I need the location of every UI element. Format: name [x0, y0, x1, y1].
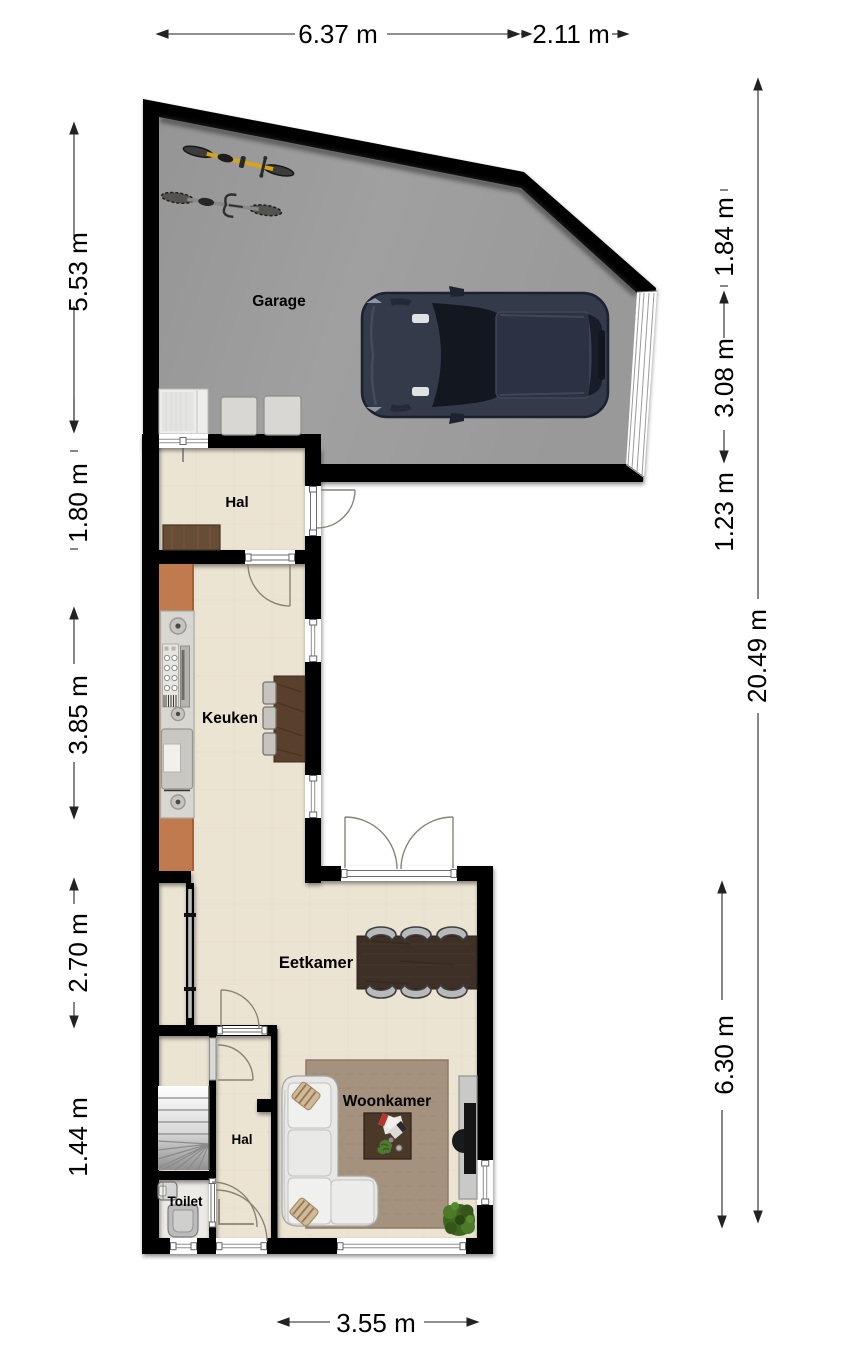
svg-text:1.80 m: 1.80 m: [63, 463, 93, 543]
svg-text:3.08 m: 3.08 m: [709, 338, 739, 418]
svg-text:1.44 m: 1.44 m: [63, 1097, 93, 1177]
svg-text:Garage: Garage: [252, 293, 306, 310]
svg-text:3.85 m: 3.85 m: [63, 675, 93, 755]
svg-text:Hal: Hal: [225, 494, 248, 511]
svg-text:2.70 m: 2.70 m: [63, 913, 93, 993]
svg-text:1.84 m: 1.84 m: [709, 197, 739, 277]
svg-text:3.55 m: 3.55 m: [336, 1308, 416, 1338]
svg-text:20.49 m: 20.49 m: [742, 609, 772, 703]
svg-text:Keuken: Keuken: [202, 710, 258, 727]
svg-text:Eetkamer: Eetkamer: [279, 954, 354, 972]
svg-text:5.53 m: 5.53 m: [63, 232, 93, 312]
svg-text:Hal: Hal: [231, 1132, 252, 1147]
svg-text:2.11 m: 2.11 m: [532, 19, 610, 49]
svg-text:6.37 m: 6.37 m: [298, 19, 378, 49]
svg-text:1.23 m: 1.23 m: [709, 472, 739, 552]
svg-text:Toilet: Toilet: [168, 1194, 204, 1209]
svg-text:Woonkamer: Woonkamer: [343, 1093, 431, 1110]
svg-text:6.30 m: 6.30 m: [709, 1015, 739, 1095]
